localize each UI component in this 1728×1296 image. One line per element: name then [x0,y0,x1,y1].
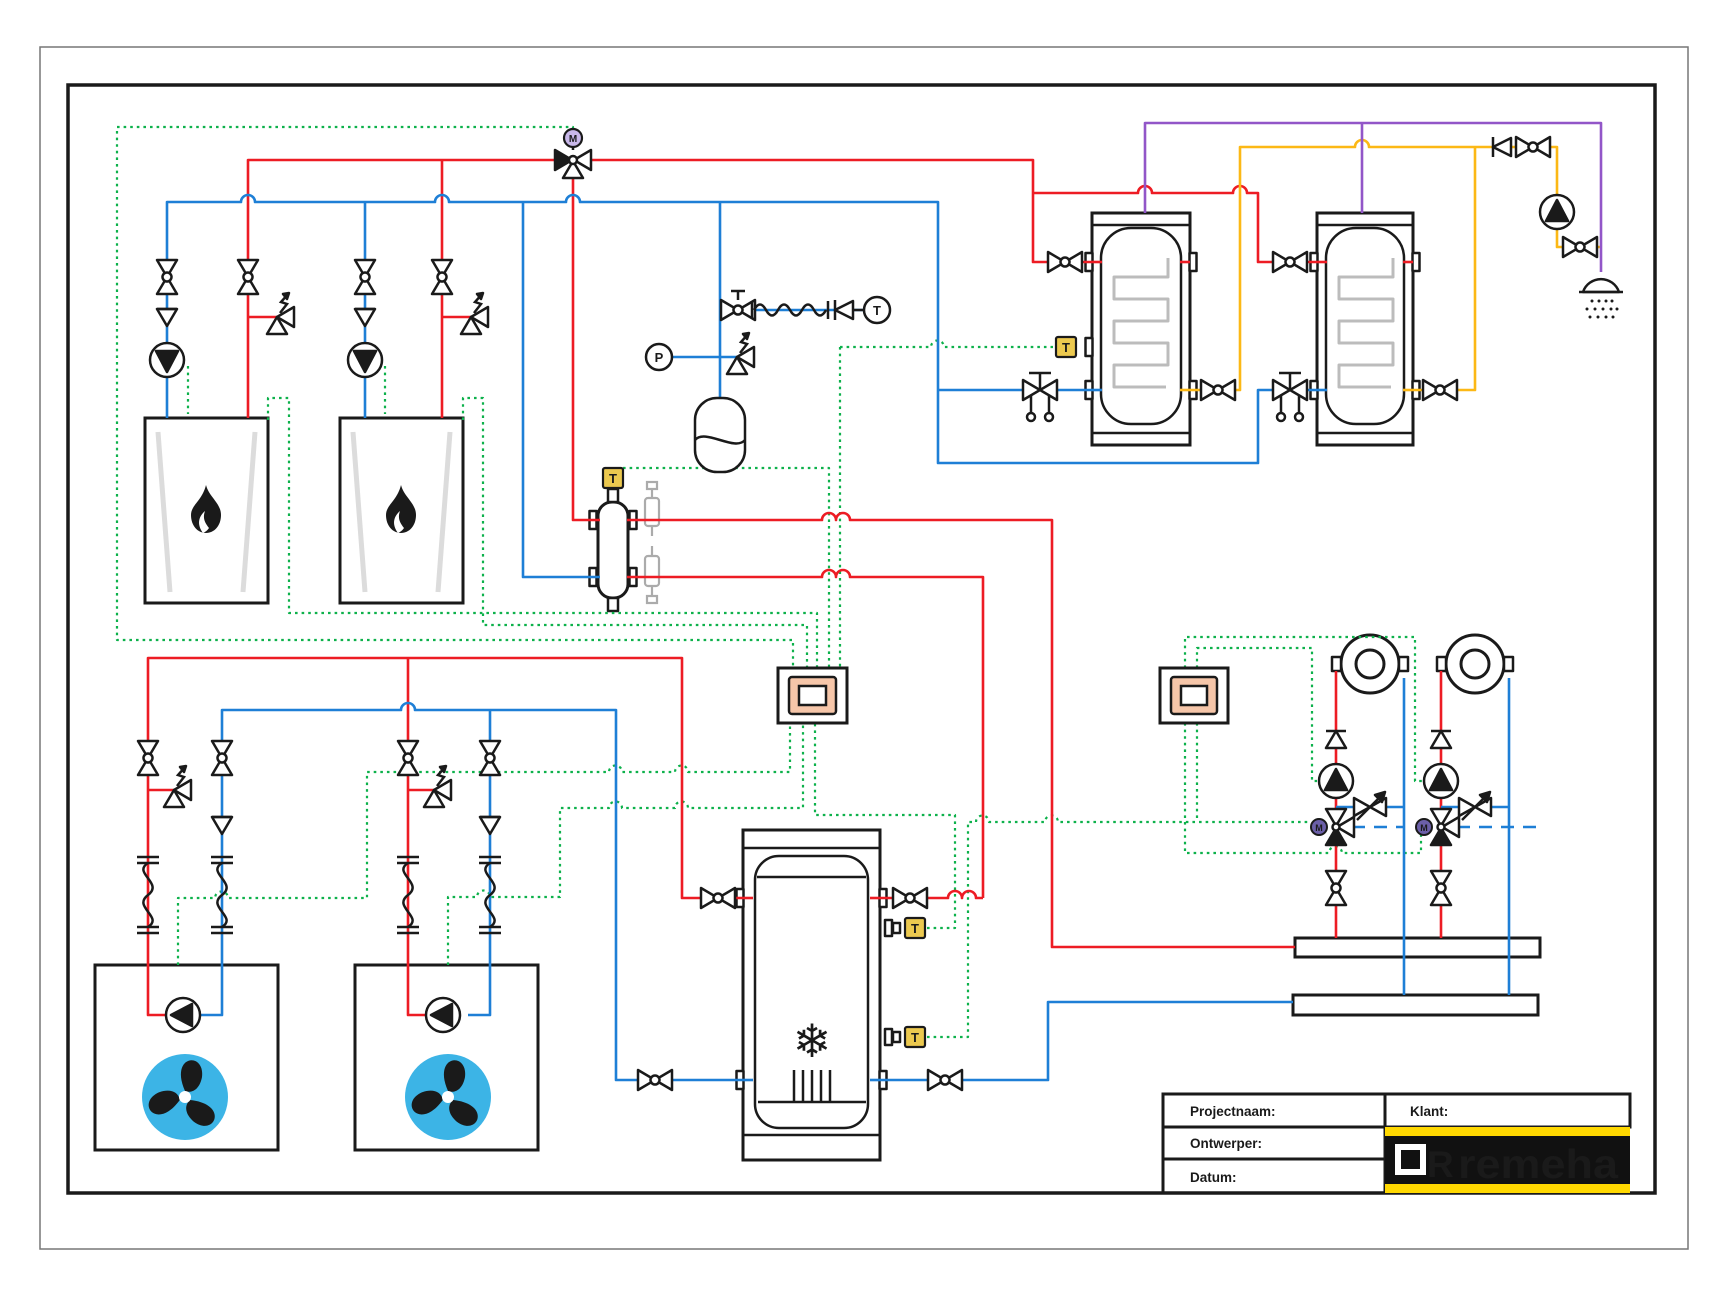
date-label: Datum: [1190,1170,1237,1185]
controller-2 [1160,668,1228,723]
motor-label: M [1420,823,1428,833]
designer-label: Ontwerper: [1190,1136,1262,1151]
expansion-vessel [695,398,745,472]
return-manifold [1293,995,1538,1015]
controller-1 [778,668,847,723]
logo-mark-letter: R [1427,1144,1454,1185]
controller-display [799,686,826,705]
pump [426,998,460,1032]
buffer-tank [737,830,887,1160]
client-label: Klant: [1410,1104,1448,1119]
pump [150,343,184,377]
temp-sensor-label: T [911,1030,919,1045]
flow-manifold [1295,938,1540,957]
temp-sensor-label: T [911,921,919,936]
separator-sensor: T [603,468,623,488]
controller-display [1181,686,1207,705]
remeha-logo: R remeha [1385,1127,1630,1193]
fan-icon [405,1054,491,1140]
hydraulic-scheme-page: M T T P T [0,0,1728,1296]
pump [1319,764,1353,798]
temp-sensor-label: T [1062,340,1070,355]
snowflake-icon: ❄ [793,1015,832,1067]
temp-sensor-label: T [609,471,617,486]
pump [166,998,200,1032]
fan-icon [142,1054,228,1140]
pump [348,343,382,377]
pressure-label: P [655,350,664,365]
boiler-1 [145,418,268,603]
pump [1424,764,1458,798]
motor-label: M [1315,823,1323,833]
boiler-2 [340,418,463,603]
project-name-label: Projectnaam: [1190,1104,1276,1119]
thermometer-label: T [873,303,881,318]
recirculation-pump [1540,195,1574,229]
hydraulic-scheme-diagram: M T T P T [0,0,1728,1296]
logo-brand-text: remeha [1458,1141,1619,1187]
motor-label: M [569,134,577,145]
dhw-tank-2 [1311,213,1420,445]
dhw-tank-1 [1086,213,1197,445]
